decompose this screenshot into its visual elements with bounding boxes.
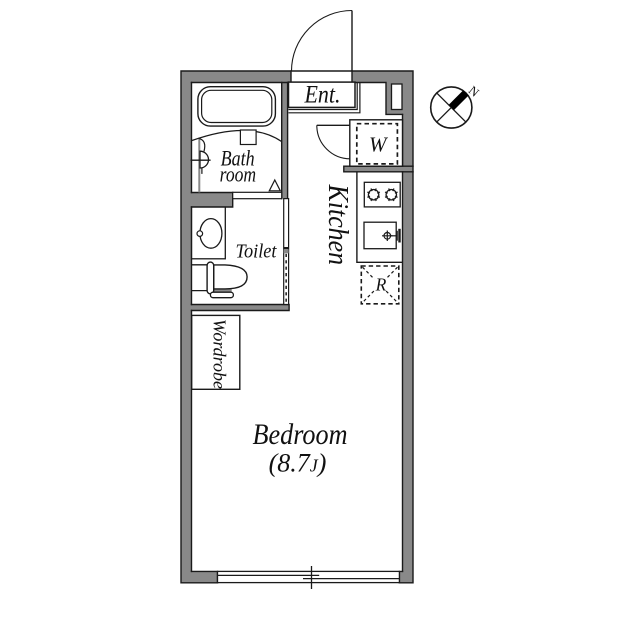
svg-text:Bedroom: Bedroom [253,418,348,451]
svg-text:W: W [369,133,389,157]
svg-text:room: room [220,161,257,186]
svg-text:Toilet: Toilet [236,242,278,263]
svg-text:Ent.: Ent. [304,82,341,109]
svg-text:Wordrobe: Wordrobe [209,319,229,389]
svg-text:R: R [375,274,387,294]
svg-text:(8.7J): (8.7J) [269,449,327,478]
svg-text:Kitchen: Kitchen [322,184,354,265]
